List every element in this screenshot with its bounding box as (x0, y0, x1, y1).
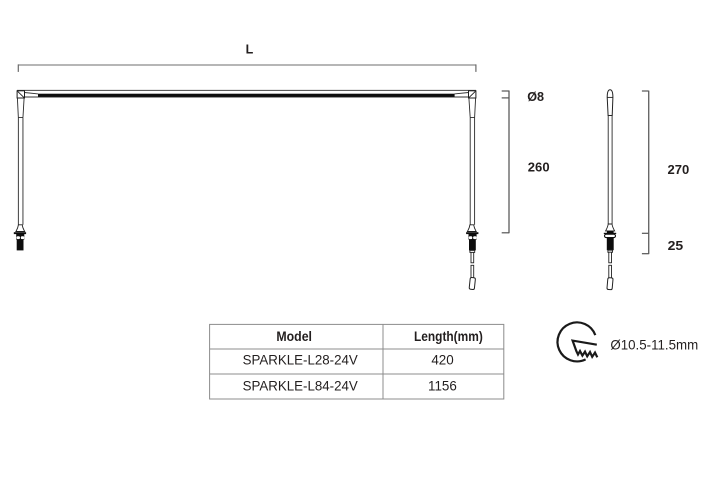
svg-text:Ø10.5-11.5mm: Ø10.5-11.5mm (610, 336, 698, 352)
svg-text:Length(mm): Length(mm) (414, 328, 483, 344)
svg-text:260: 260 (528, 160, 550, 175)
svg-text:SPARKLE-L84-24V: SPARKLE-L84-24V (243, 379, 358, 394)
svg-text:420: 420 (431, 353, 453, 368)
svg-text:270: 270 (668, 162, 690, 177)
svg-text:SPARKLE-L28-24V: SPARKLE-L28-24V (243, 353, 358, 368)
svg-text:1156: 1156 (428, 379, 457, 394)
svg-text:Ø8: Ø8 (527, 90, 544, 104)
svg-text:25: 25 (668, 238, 684, 253)
svg-text:Model: Model (276, 328, 312, 344)
svg-text:L: L (246, 43, 254, 57)
